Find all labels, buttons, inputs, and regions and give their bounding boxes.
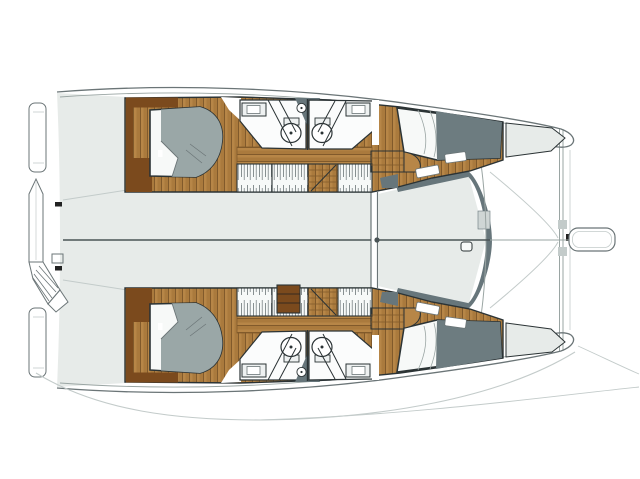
deck-fitting bbox=[461, 242, 472, 251]
coaming-step bbox=[478, 211, 490, 229]
wardrobe-row bbox=[237, 164, 372, 192]
cabinet-strip bbox=[126, 98, 178, 108]
transom-platform bbox=[29, 103, 46, 172]
hull-flank-line bbox=[260, 387, 639, 420]
pillow-detail bbox=[158, 150, 163, 157]
bow-stem-line bbox=[578, 346, 639, 374]
floor-plan-canvas bbox=[0, 0, 640, 479]
mast-step-dot bbox=[374, 237, 379, 242]
forward-berth-mattress bbox=[436, 111, 502, 160]
basin-drain bbox=[300, 107, 302, 109]
hanging-locker bbox=[272, 164, 308, 192]
deck-cleat bbox=[55, 266, 62, 271]
drawer-unit bbox=[277, 285, 300, 313]
deck-cleat bbox=[55, 202, 62, 207]
catamaran-plan-svg bbox=[0, 0, 640, 479]
trampoline-line bbox=[490, 172, 558, 238]
beam-fitting bbox=[558, 220, 567, 229]
sink-basin bbox=[352, 106, 365, 114]
hanging-locker bbox=[237, 164, 272, 192]
toilet-flush bbox=[321, 132, 324, 135]
toilet-flush bbox=[290, 132, 293, 135]
aft-double-berth bbox=[150, 107, 222, 177]
companionway-steps bbox=[308, 164, 338, 192]
hanging-locker bbox=[338, 164, 372, 192]
trampoline-line bbox=[490, 242, 558, 308]
bathroom-forward-wall bbox=[372, 100, 379, 145]
beam-fitting bbox=[558, 247, 567, 256]
sink-basin bbox=[247, 106, 260, 114]
aft-cabinet bbox=[126, 158, 152, 192]
